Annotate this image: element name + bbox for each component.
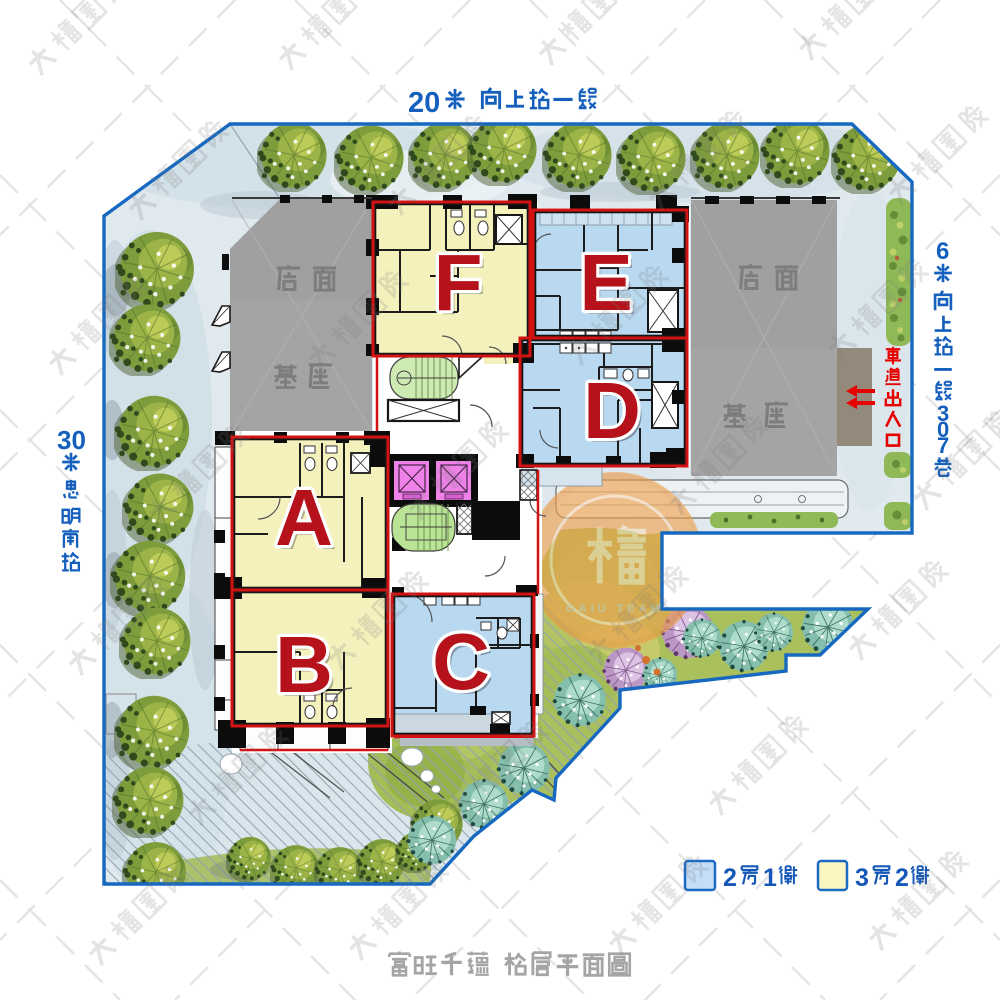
svg-text:F: F [434,238,483,327]
svg-text:1: 1 [763,864,777,892]
svg-text:A: A [275,473,333,562]
svg-text:30: 30 [57,425,86,455]
svg-text:7: 7 [937,433,949,458]
svg-text:D: D [583,366,641,455]
svg-text:C: C [432,617,490,706]
svg-text:B: B [275,620,333,709]
svg-text:20: 20 [408,87,440,119]
svg-text:6: 6 [936,238,949,265]
svg-text:2: 2 [895,864,909,892]
svg-text:3: 3 [855,864,869,892]
svg-text:2: 2 [723,864,737,892]
